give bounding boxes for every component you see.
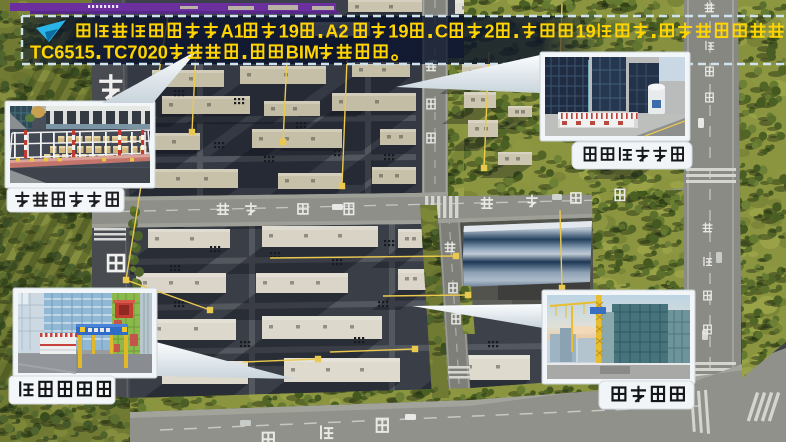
- svg-text:BIM: BIM: [286, 43, 319, 63]
- svg-text:A1: A1: [221, 22, 244, 42]
- svg-text:19: 19: [388, 22, 408, 42]
- svg-text:2: 2: [484, 22, 494, 42]
- svg-text:C: C: [435, 22, 448, 42]
- svg-text:19: 19: [279, 22, 299, 42]
- svg-text:A2: A2: [325, 22, 348, 42]
- svg-text:TC6515: TC6515: [30, 43, 95, 63]
- svg-text:TC7020: TC7020: [103, 43, 168, 63]
- svg-text:19: 19: [576, 22, 596, 42]
